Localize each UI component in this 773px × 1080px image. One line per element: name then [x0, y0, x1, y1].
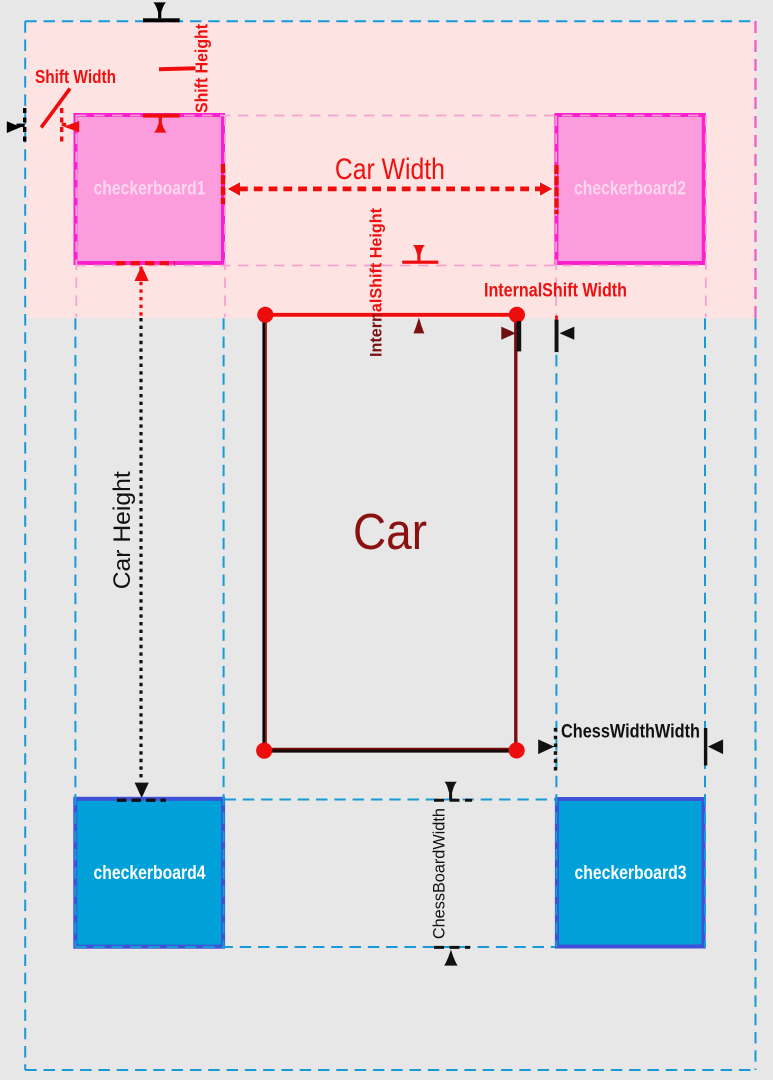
svg-text:Car: Car — [353, 503, 427, 560]
svg-text:Shift Width: Shift Width — [35, 67, 116, 87]
svg-text:ChessBoardWidth: ChessBoardWidth — [430, 808, 449, 939]
svg-text:checkerboard1: checkerboard1 — [94, 178, 206, 200]
svg-text:Car Width: Car Width — [335, 153, 445, 186]
svg-text:checkerboard3: checkerboard3 — [575, 862, 687, 884]
svg-text:checkerboard4: checkerboard4 — [94, 862, 206, 884]
svg-text:ChessWidthWidth: ChessWidthWidth — [561, 722, 700, 743]
svg-text:Shift Height: Shift Height — [192, 24, 212, 113]
svg-text:Car Height: Car Height — [109, 471, 136, 589]
svg-text:checkerboard2: checkerboard2 — [574, 178, 686, 200]
svg-text:InternalShift Width: InternalShift Width — [484, 281, 627, 302]
